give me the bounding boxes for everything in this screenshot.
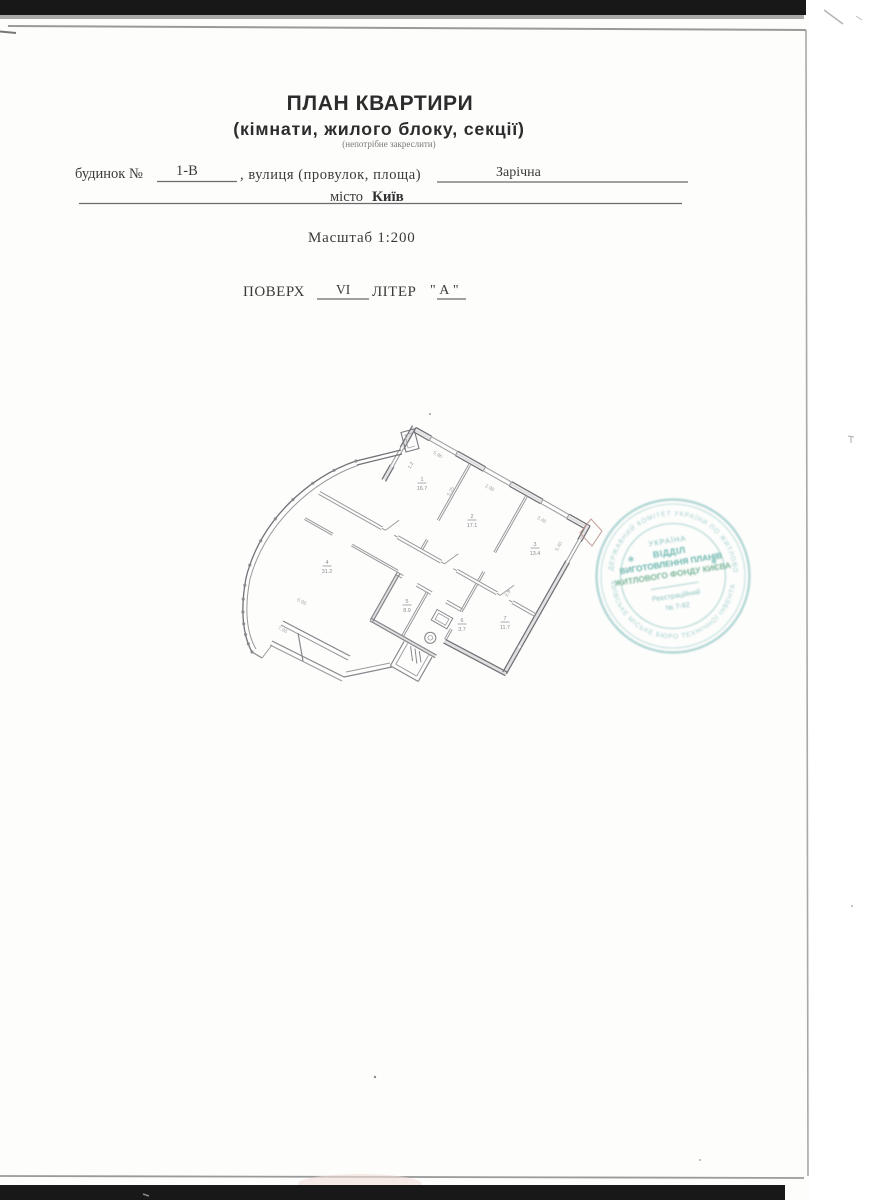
svg-text:, вулиця (провулок, площа): , вулиця (провулок, площа): [240, 167, 421, 183]
svg-text:будинок №: будинок №: [75, 166, 143, 182]
svg-text:13.4: 13.4: [530, 551, 541, 557]
svg-text:4: 4: [326, 560, 329, 566]
svg-text:" А ": " А ": [430, 283, 459, 298]
svg-text:VI: VI: [336, 282, 351, 297]
svg-text:6: 6: [461, 618, 464, 624]
svg-text:ЛІТЕР: ЛІТЕР: [372, 284, 416, 300]
svg-text:✱: ✱: [628, 555, 635, 564]
svg-text:1: 1: [421, 477, 424, 483]
svg-text:Київ: Київ: [372, 189, 404, 205]
svg-text:1-В: 1-В: [176, 163, 198, 179]
svg-text:місто: місто: [330, 189, 363, 205]
svg-text:ПОВЕРХ: ПОВЕРХ: [243, 284, 305, 300]
svg-text:(непотрібне закреслити): (непотрібне закреслити): [342, 139, 435, 149]
svg-text:16.7: 16.7: [417, 486, 428, 492]
svg-text:31.2: 31.2: [322, 569, 333, 575]
svg-text:(кімнати, жилого блоку, секції: (кімнати, жилого блоку, секції): [233, 119, 525, 139]
svg-text:17.1: 17.1: [467, 523, 478, 529]
svg-text:Зарічна: Зарічна: [496, 165, 542, 180]
svg-text:3.7: 3.7: [458, 627, 466, 633]
svg-text:5: 5: [406, 599, 409, 605]
svg-text:2: 2: [471, 514, 474, 520]
svg-text:7: 7: [504, 616, 507, 622]
svg-text:3: 3: [534, 542, 537, 548]
svg-text:11.7: 11.7: [500, 625, 510, 631]
svg-text:ПЛАН КВАРТИРИ: ПЛАН КВАРТИРИ: [287, 92, 474, 115]
svg-text:8.9: 8.9: [403, 608, 411, 614]
svg-text:Масштаб 1:200: Масштаб 1:200: [308, 230, 416, 246]
